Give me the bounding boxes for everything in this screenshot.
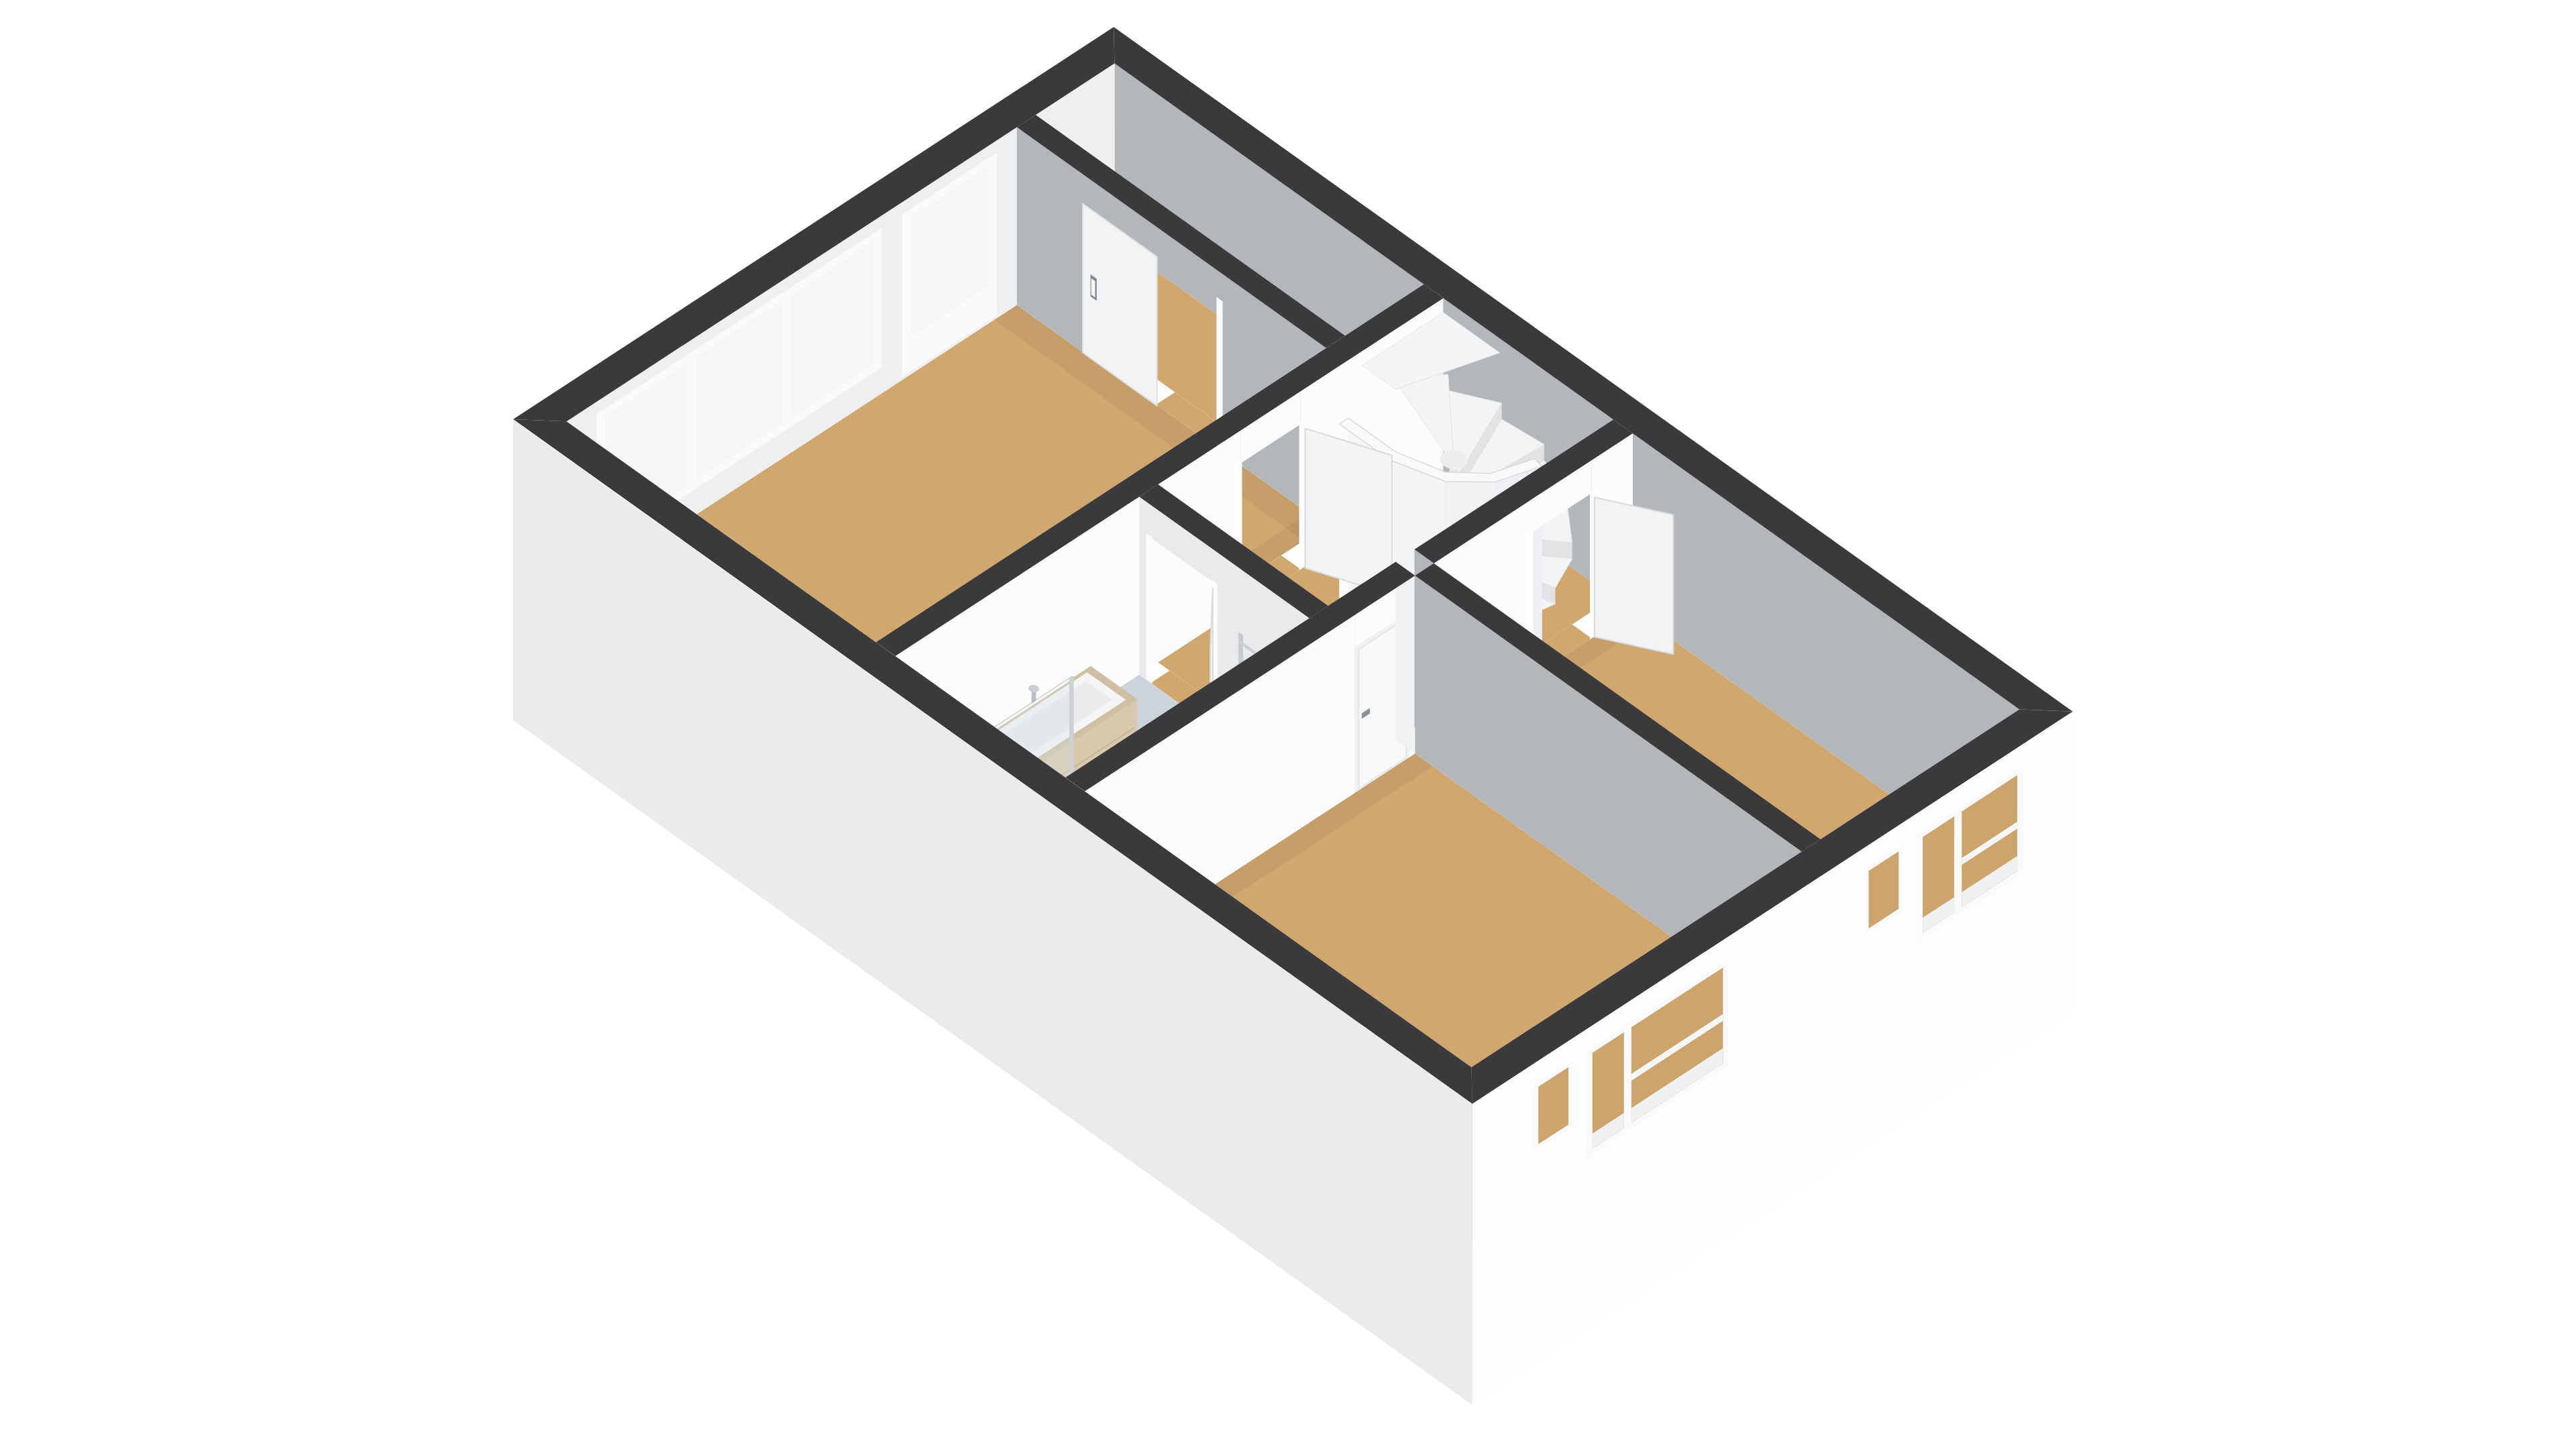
bathroom-door-jamb-1 [1146, 533, 1152, 684]
bedroom1-door-jamb-2 [1299, 420, 1305, 570]
bedroom2-wall-end-face [1396, 561, 1415, 753]
bedroom3-door-panel [1595, 498, 1674, 655]
closet-door-handle-core [1091, 278, 1095, 298]
bedroom1-door-panel [1305, 429, 1392, 595]
floorplan-3d-render [0, 0, 2576, 1449]
floorplan-stage [0, 0, 2576, 1449]
